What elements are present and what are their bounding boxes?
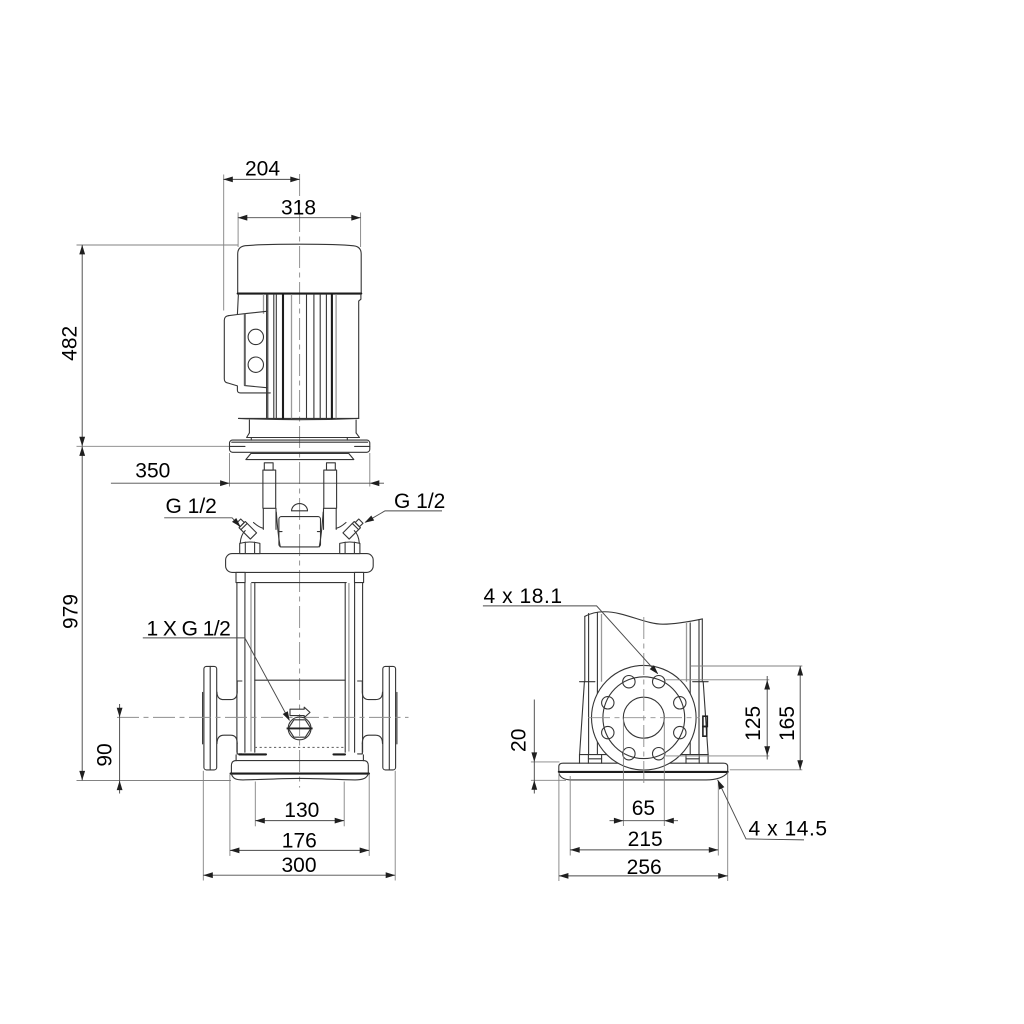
svg-text:204: 204 [245, 158, 280, 181]
svg-text:G 1/2: G 1/2 [166, 495, 217, 518]
svg-text:130: 130 [284, 799, 319, 822]
svg-text:4 x 18.1: 4 x 18.1 [484, 585, 563, 608]
svg-text:979: 979 [59, 594, 82, 629]
svg-text:125: 125 [742, 706, 765, 741]
svg-text:318: 318 [281, 197, 316, 220]
svg-text:176: 176 [282, 830, 317, 853]
svg-text:4 x 14.5: 4 x 14.5 [749, 818, 828, 841]
svg-text:65: 65 [632, 797, 655, 820]
svg-text:165: 165 [776, 706, 799, 741]
svg-text:G 1/2: G 1/2 [394, 490, 445, 513]
svg-text:90: 90 [94, 743, 117, 766]
svg-text:350: 350 [135, 460, 170, 483]
svg-text:20: 20 [508, 729, 531, 752]
svg-text:482: 482 [58, 326, 81, 361]
svg-text:215: 215 [628, 828, 663, 851]
svg-text:300: 300 [281, 854, 316, 877]
svg-text:1 X G 1/2: 1 X G 1/2 [147, 618, 231, 641]
svg-text:256: 256 [627, 856, 662, 879]
